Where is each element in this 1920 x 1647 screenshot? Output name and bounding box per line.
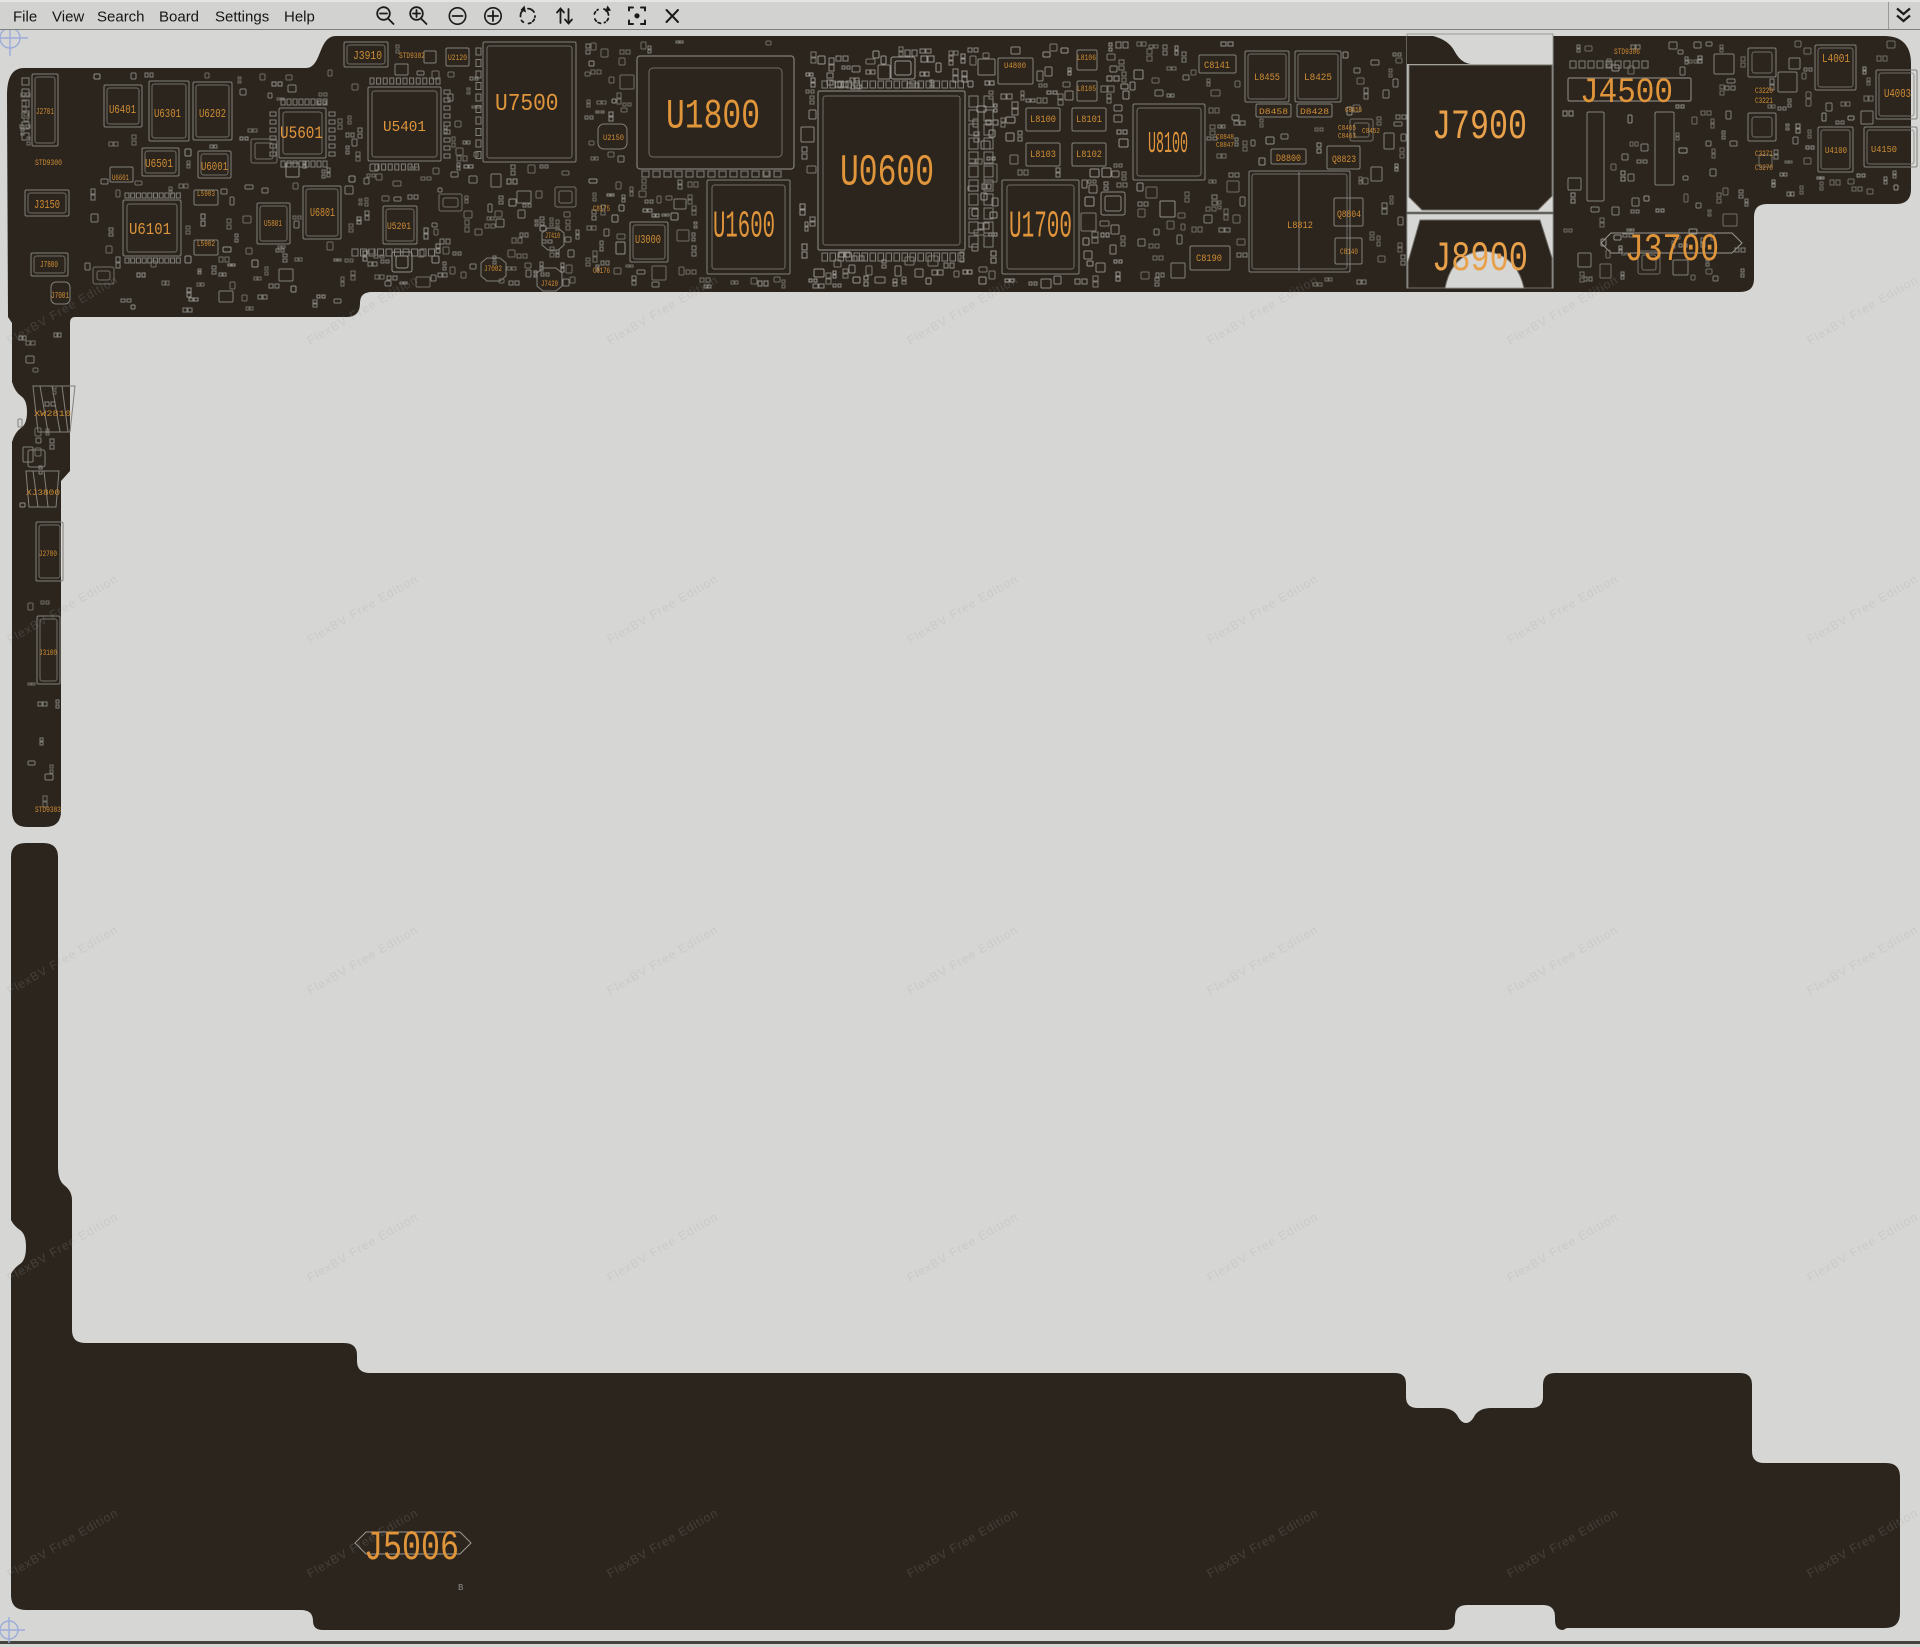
svg-text:J2701: J2701 [36, 106, 54, 117]
svg-text:C3271: C3271 [1755, 151, 1773, 159]
svg-text:U6401: U6401 [109, 103, 136, 117]
svg-text:J7420: J7420 [541, 279, 558, 289]
svg-text:U4800: U4800 [1004, 63, 1026, 71]
svg-text:L8455: L8455 [1254, 73, 1280, 84]
svg-text:J7900: J7900 [1432, 103, 1527, 151]
svg-text:Search: Search [97, 9, 145, 26]
svg-text:U5801: U5801 [264, 218, 282, 229]
svg-text:D8800: D8800 [1276, 154, 1301, 165]
svg-text:C8175: C8175 [593, 206, 610, 214]
svg-text:J3910: J3910 [353, 49, 382, 63]
svg-text:U8100: U8100 [1148, 127, 1188, 162]
svg-text:U6001: U6001 [201, 160, 228, 174]
svg-text:J3150: J3150 [34, 198, 60, 212]
svg-text:U6601: U6601 [112, 173, 129, 183]
svg-text:U6301: U6301 [154, 107, 181, 121]
svg-text:C8452: C8452 [1362, 128, 1380, 136]
svg-text:Board: Board [159, 9, 199, 26]
svg-text:L4001: L4001 [1822, 52, 1850, 66]
svg-text:J8900: J8900 [1432, 235, 1528, 283]
svg-text:U4150: U4150 [1871, 144, 1897, 155]
svg-text:U3000: U3000 [635, 233, 661, 247]
svg-text:D8428: D8428 [1300, 107, 1329, 117]
svg-text:D8458: D8458 [1259, 107, 1288, 117]
svg-text:File: File [13, 9, 37, 26]
svg-text:L8103: L8103 [1030, 150, 1056, 161]
svg-text:C3270: C3270 [1755, 165, 1773, 173]
svg-text:U6801: U6801 [310, 206, 335, 220]
svg-text:C8848: C8848 [1216, 134, 1234, 142]
svg-text:U0600: U0600 [840, 149, 934, 199]
svg-text:C8455: C8455 [1345, 107, 1362, 115]
svg-text:L8101: L8101 [1076, 115, 1102, 126]
svg-text:U5601: U5601 [280, 125, 323, 144]
svg-text:J7002: J7002 [484, 264, 502, 274]
svg-text:STD9300: STD9300 [35, 158, 62, 168]
svg-text:J3100: J3100 [39, 648, 57, 658]
svg-text:J3700: J3700 [1625, 228, 1719, 272]
svg-text:STD9302: STD9302 [399, 51, 425, 61]
svg-text:J7800: J7800 [40, 259, 58, 270]
svg-text:B: B [458, 1583, 464, 1593]
svg-text:L8105: L8105 [1077, 86, 1096, 94]
svg-text:L8812: L8812 [1287, 221, 1313, 232]
svg-text:U7500: U7500 [495, 91, 559, 118]
svg-text:STD9306: STD9306 [1614, 47, 1640, 57]
svg-text:View: View [52, 9, 84, 26]
svg-text:Settings: Settings [215, 9, 269, 26]
svg-text:L8102: L8102 [1076, 150, 1102, 161]
svg-text:U5201: U5201 [387, 222, 411, 233]
svg-text:C8140: C8140 [1340, 249, 1358, 257]
svg-text:C8463: C8463 [1338, 133, 1356, 141]
svg-text:L5902: L5902 [197, 239, 215, 249]
svg-text:C8847: C8847 [1216, 142, 1234, 150]
svg-text:U2120: U2120 [448, 53, 467, 63]
svg-text:U1800: U1800 [666, 93, 760, 141]
svg-text:U4003: U4003 [1884, 87, 1911, 101]
svg-text:STD9303: STD9303 [35, 807, 61, 815]
svg-text:XW2810: XW2810 [34, 409, 71, 419]
svg-text:C3220: C3220 [1755, 88, 1773, 96]
svg-text:Q8804: Q8804 [1337, 210, 1361, 221]
svg-text:XJ3800: XJ3800 [26, 488, 60, 498]
svg-text:U2150: U2150 [603, 133, 624, 143]
svg-text:U6202: U6202 [199, 107, 226, 121]
svg-text:C8141: C8141 [1204, 61, 1230, 72]
svg-text:U1700: U1700 [1009, 207, 1072, 249]
svg-text:C3221: C3221 [1755, 98, 1773, 106]
svg-text:L8425: L8425 [1304, 73, 1332, 84]
svg-text:Help: Help [284, 9, 315, 26]
svg-text:J2700: J2700 [39, 549, 57, 559]
svg-text:L8100: L8100 [1030, 115, 1056, 126]
svg-text:C8465: C8465 [1338, 125, 1356, 133]
svg-text:J7410: J7410 [545, 233, 560, 241]
svg-text:L8106: L8106 [1077, 55, 1096, 63]
svg-text:C8190: C8190 [1196, 254, 1222, 265]
svg-text:C8176: C8176 [593, 268, 610, 276]
svg-text:L5903: L5903 [197, 189, 215, 199]
svg-text:J4500: J4500 [1580, 74, 1673, 113]
svg-text:Q8823: Q8823 [1332, 155, 1356, 166]
svg-text:U1600: U1600 [713, 207, 775, 249]
svg-text:U5401: U5401 [383, 120, 426, 136]
svg-text:U6101: U6101 [129, 220, 171, 239]
svg-text:U4100: U4100 [1825, 145, 1847, 156]
svg-text:U6501: U6501 [145, 157, 173, 171]
